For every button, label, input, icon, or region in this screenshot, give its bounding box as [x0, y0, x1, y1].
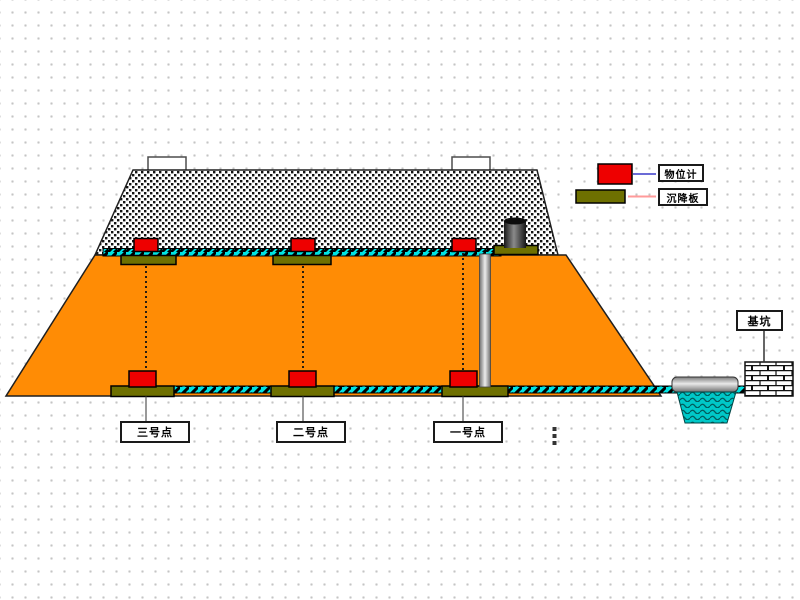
- legend-label-level-gauge-text: 物位计: [665, 166, 698, 181]
- pipe-cap-top: [504, 218, 526, 225]
- settlement-plate-icon: [121, 256, 176, 265]
- legend-label-settlement-plate: 沉降板: [658, 188, 708, 206]
- pipe-cap-cylinder: [504, 221, 526, 248]
- level-gauge-icon: [289, 371, 316, 387]
- brick-pit-wall: [745, 362, 793, 396]
- point-label-2: 二号点: [276, 421, 346, 443]
- hmi-canvas: 三号点 二号点 一号点 物位计 沉降板 基坑: [0, 0, 800, 600]
- crest-marker-right: [452, 157, 490, 171]
- legend-label-settlement-plate-text: 沉降板: [667, 190, 700, 205]
- pit-label-text: 基坑: [748, 313, 772, 329]
- legend-olive-plate-swatch: [576, 190, 625, 203]
- lower-settlement-band: [112, 386, 746, 393]
- point-label-1: 一号点: [433, 421, 503, 443]
- label-connectors: [146, 397, 463, 422]
- crest-marker-left: [148, 157, 186, 171]
- level-gauge-icon: [452, 239, 476, 252]
- level-gauge-icon: [291, 239, 315, 252]
- legend-label-level-gauge: 物位计: [658, 164, 704, 182]
- gravel-surcharge-layer: [95, 170, 558, 255]
- point-label-2-text: 二号点: [293, 424, 329, 440]
- settlement-plate-icon: [273, 256, 331, 265]
- embankment-body: [6, 255, 661, 396]
- level-gauge-icon: [450, 371, 477, 387]
- embankment-diagram: [0, 0, 800, 600]
- level-gauge-icon: [134, 239, 158, 252]
- outlet-pipe-horizontal: [672, 377, 738, 392]
- level-gauge-icon: [129, 371, 156, 387]
- legend-red-sensor-swatch: [598, 164, 632, 184]
- point-label-1-text: 一号点: [450, 424, 486, 440]
- pit-label: 基坑: [736, 310, 783, 331]
- water-basin: [677, 392, 736, 423]
- point-label-3: 三号点: [120, 421, 190, 443]
- riser-pipe: [480, 254, 491, 387]
- point-label-3-text: 三号点: [137, 424, 173, 440]
- vertical-ellipsis-mark: [553, 427, 557, 445]
